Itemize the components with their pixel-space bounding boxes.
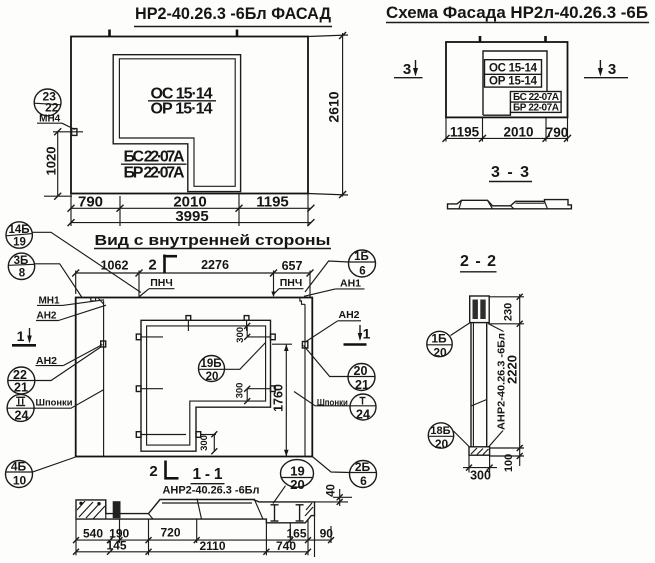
- svg-text:2220: 2220: [505, 355, 520, 384]
- svg-text:3: 3: [608, 61, 616, 78]
- svg-text:1062: 1062: [101, 259, 129, 273]
- svg-text:3Б: 3Б: [14, 255, 29, 267]
- svg-text:БР 22·07А: БР 22·07А: [124, 165, 185, 182]
- svg-text:14Б: 14Б: [8, 224, 29, 236]
- svg-text:3-3: 3-3: [491, 164, 529, 181]
- svg-text:Шпонки: Шпонки: [317, 397, 348, 408]
- svg-text:20: 20: [433, 345, 447, 359]
- svg-text:300: 300: [199, 435, 210, 451]
- svg-text:ОР 15·14: ОР 15·14: [151, 101, 213, 118]
- svg-text:21: 21: [14, 380, 28, 394]
- svg-text:1020: 1020: [44, 147, 59, 176]
- svg-text:100: 100: [503, 454, 515, 472]
- svg-text:540: 540: [83, 526, 103, 540]
- svg-text:1: 1: [17, 328, 25, 344]
- svg-text:БС 22-07А: БС 22-07А: [513, 92, 559, 103]
- svg-text:790: 790: [78, 194, 103, 211]
- svg-text:6: 6: [360, 474, 367, 488]
- svg-text:1760: 1760: [272, 384, 286, 412]
- svg-text:20: 20: [290, 477, 304, 492]
- svg-text:ОС 15-14: ОС 15-14: [489, 63, 538, 75]
- svg-text:3: 3: [403, 61, 411, 78]
- svg-text:2Б: 2Б: [355, 460, 371, 474]
- svg-text:2110: 2110: [199, 539, 225, 553]
- svg-text:20: 20: [354, 364, 368, 378]
- svg-text:300: 300: [234, 383, 245, 399]
- svg-text:790: 790: [546, 125, 569, 140]
- svg-text:2: 2: [148, 257, 156, 274]
- svg-text:АН1: АН1: [340, 278, 361, 290]
- svg-text:1Б: 1Б: [354, 251, 369, 263]
- svg-text:1-1: 1-1: [193, 466, 223, 483]
- svg-text:МН1: МН1: [38, 295, 60, 306]
- svg-text:Вид с внутренней стороны: Вид с внутренней стороны: [95, 232, 331, 249]
- svg-text:20: 20: [206, 371, 219, 383]
- svg-text:19: 19: [13, 237, 26, 249]
- svg-text:1: 1: [363, 326, 371, 342]
- svg-text:ПНЧ: ПНЧ: [150, 277, 173, 289]
- svg-text:1Б: 1Б: [431, 331, 447, 345]
- svg-text:2610: 2610: [326, 91, 342, 122]
- svg-text:4Б: 4Б: [11, 459, 27, 473]
- svg-text:АН2: АН2: [36, 310, 56, 321]
- svg-text:Шпонки: Шпонки: [36, 397, 73, 408]
- svg-text:2276: 2276: [201, 258, 229, 272]
- svg-text:40: 40: [326, 484, 338, 497]
- svg-text:АНР2-40.26.3 -6Бл: АНР2-40.26.3 -6Бл: [163, 485, 260, 497]
- svg-text:1195: 1195: [450, 125, 480, 140]
- svg-text:2010: 2010: [503, 125, 533, 140]
- svg-text:230: 230: [503, 303, 515, 321]
- svg-text:6: 6: [359, 265, 365, 277]
- svg-text:24: 24: [15, 408, 29, 422]
- svg-text:720: 720: [160, 525, 180, 539]
- svg-text:3995: 3995: [175, 208, 208, 225]
- svg-text:18Б: 18Б: [430, 425, 450, 437]
- svg-text:300: 300: [470, 469, 491, 483]
- svg-text:24: 24: [356, 407, 370, 421]
- svg-text:21: 21: [355, 378, 369, 392]
- svg-text:10: 10: [13, 473, 27, 487]
- svg-text:145: 145: [106, 539, 126, 553]
- svg-text:АН2: АН2: [338, 309, 359, 321]
- svg-text:2: 2: [149, 463, 157, 480]
- svg-text:300: 300: [235, 327, 246, 343]
- svg-text:БС 22·07А: БС 22·07А: [124, 149, 185, 166]
- svg-text:1195: 1195: [256, 194, 289, 211]
- svg-text:ПНЧ: ПНЧ: [280, 277, 303, 289]
- svg-text:19Б: 19Б: [200, 358, 221, 370]
- svg-text:2-2: 2-2: [460, 253, 496, 270]
- svg-text:БР 22-07А: БР 22-07А: [513, 103, 559, 114]
- svg-text:Схема Фасада НР2л-40.26.3 -6Б: Схема Фасада НР2л-40.26.3 -6Б: [386, 4, 648, 22]
- svg-text:НР2-40.26.3 -6Бл ФАСАД: НР2-40.26.3 -6Бл ФАСАД: [135, 4, 331, 23]
- svg-text:ОР 15-14: ОР 15-14: [489, 76, 538, 88]
- svg-text:8: 8: [19, 268, 26, 280]
- svg-text:20: 20: [435, 437, 449, 451]
- svg-text:657: 657: [282, 259, 303, 273]
- svg-text:90: 90: [320, 527, 334, 541]
- svg-text:740: 740: [276, 539, 296, 553]
